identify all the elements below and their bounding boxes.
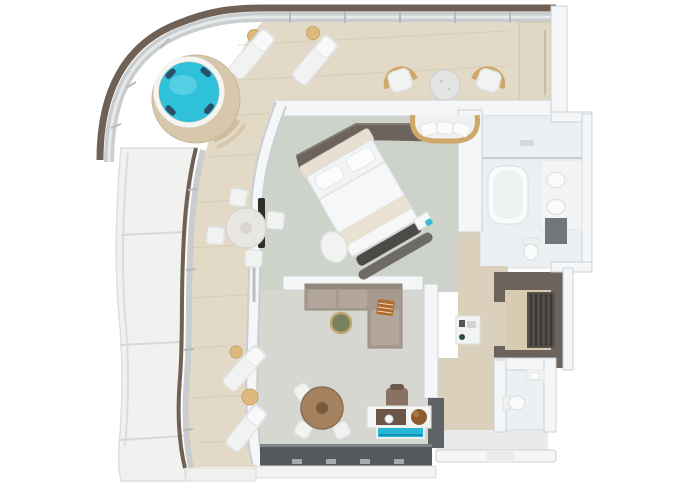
window-frame-tick (394, 459, 404, 464)
shower-drain (520, 140, 534, 146)
side-table (307, 27, 320, 40)
window-frame-tick (360, 459, 370, 464)
sink-basin (530, 373, 540, 380)
outdoor-round-table (430, 70, 460, 100)
railing-post (186, 269, 196, 270)
wall-bath-wing-right (582, 114, 592, 272)
outdoor-dining-chair (229, 188, 248, 207)
sofa-cushion (308, 290, 336, 308)
desk-chair-back (390, 384, 404, 390)
coffee-table (331, 313, 351, 333)
throw-blanket (376, 299, 395, 316)
shower-partition (545, 218, 567, 244)
walk-in-closet (494, 272, 568, 368)
minibar-tray (467, 321, 476, 328)
globe (411, 409, 427, 425)
table-pedestal-shadow (240, 222, 252, 234)
side-table (242, 389, 258, 405)
wall-living-right (424, 284, 438, 398)
deck-step-platform (186, 468, 256, 481)
toilet-bowl (509, 396, 525, 410)
floorplan-svg (0, 0, 680, 486)
sink (547, 200, 565, 215)
bathtub-inner (493, 171, 523, 219)
table-speckle (440, 80, 443, 83)
side-table (230, 346, 242, 358)
entry-door-gap (487, 450, 515, 462)
wall-guestbath-right (544, 358, 556, 432)
wall-right-mid (563, 268, 573, 370)
wall-top-right-vertical (551, 6, 567, 116)
table-speckle (448, 88, 451, 91)
railing-post (188, 189, 198, 190)
railing-post (183, 429, 193, 430)
wall-top (274, 100, 556, 116)
minibar-bottle (459, 334, 465, 340)
railing-post (184, 349, 194, 350)
dining-table-pedestal (316, 402, 328, 414)
window-frame-tick (326, 459, 336, 464)
window-band-top-edge (260, 444, 432, 447)
window-band (260, 444, 432, 468)
floorplan-render (0, 0, 680, 486)
toilet-bowl (524, 244, 538, 260)
coffee-machine (459, 320, 465, 327)
outdoor-sofa (413, 115, 478, 141)
sofa-pillow (436, 121, 454, 135)
sink (547, 173, 565, 188)
sofa-cushion (339, 290, 367, 308)
outdoor-dining-chair (266, 211, 284, 229)
minibar-niche (456, 316, 480, 344)
outdoor-dining-chair (206, 226, 224, 244)
globe-highlight (413, 411, 419, 417)
outdoor-dining-chair (244, 249, 262, 267)
entry-floor (436, 430, 548, 452)
closet-door-opening (494, 302, 505, 346)
desk-lamp (385, 415, 393, 423)
window-frame-tick (292, 459, 302, 464)
water-highlight (169, 75, 197, 95)
aquarium (377, 427, 424, 438)
sofa-back-edge (305, 284, 402, 289)
window-sill (256, 466, 436, 478)
